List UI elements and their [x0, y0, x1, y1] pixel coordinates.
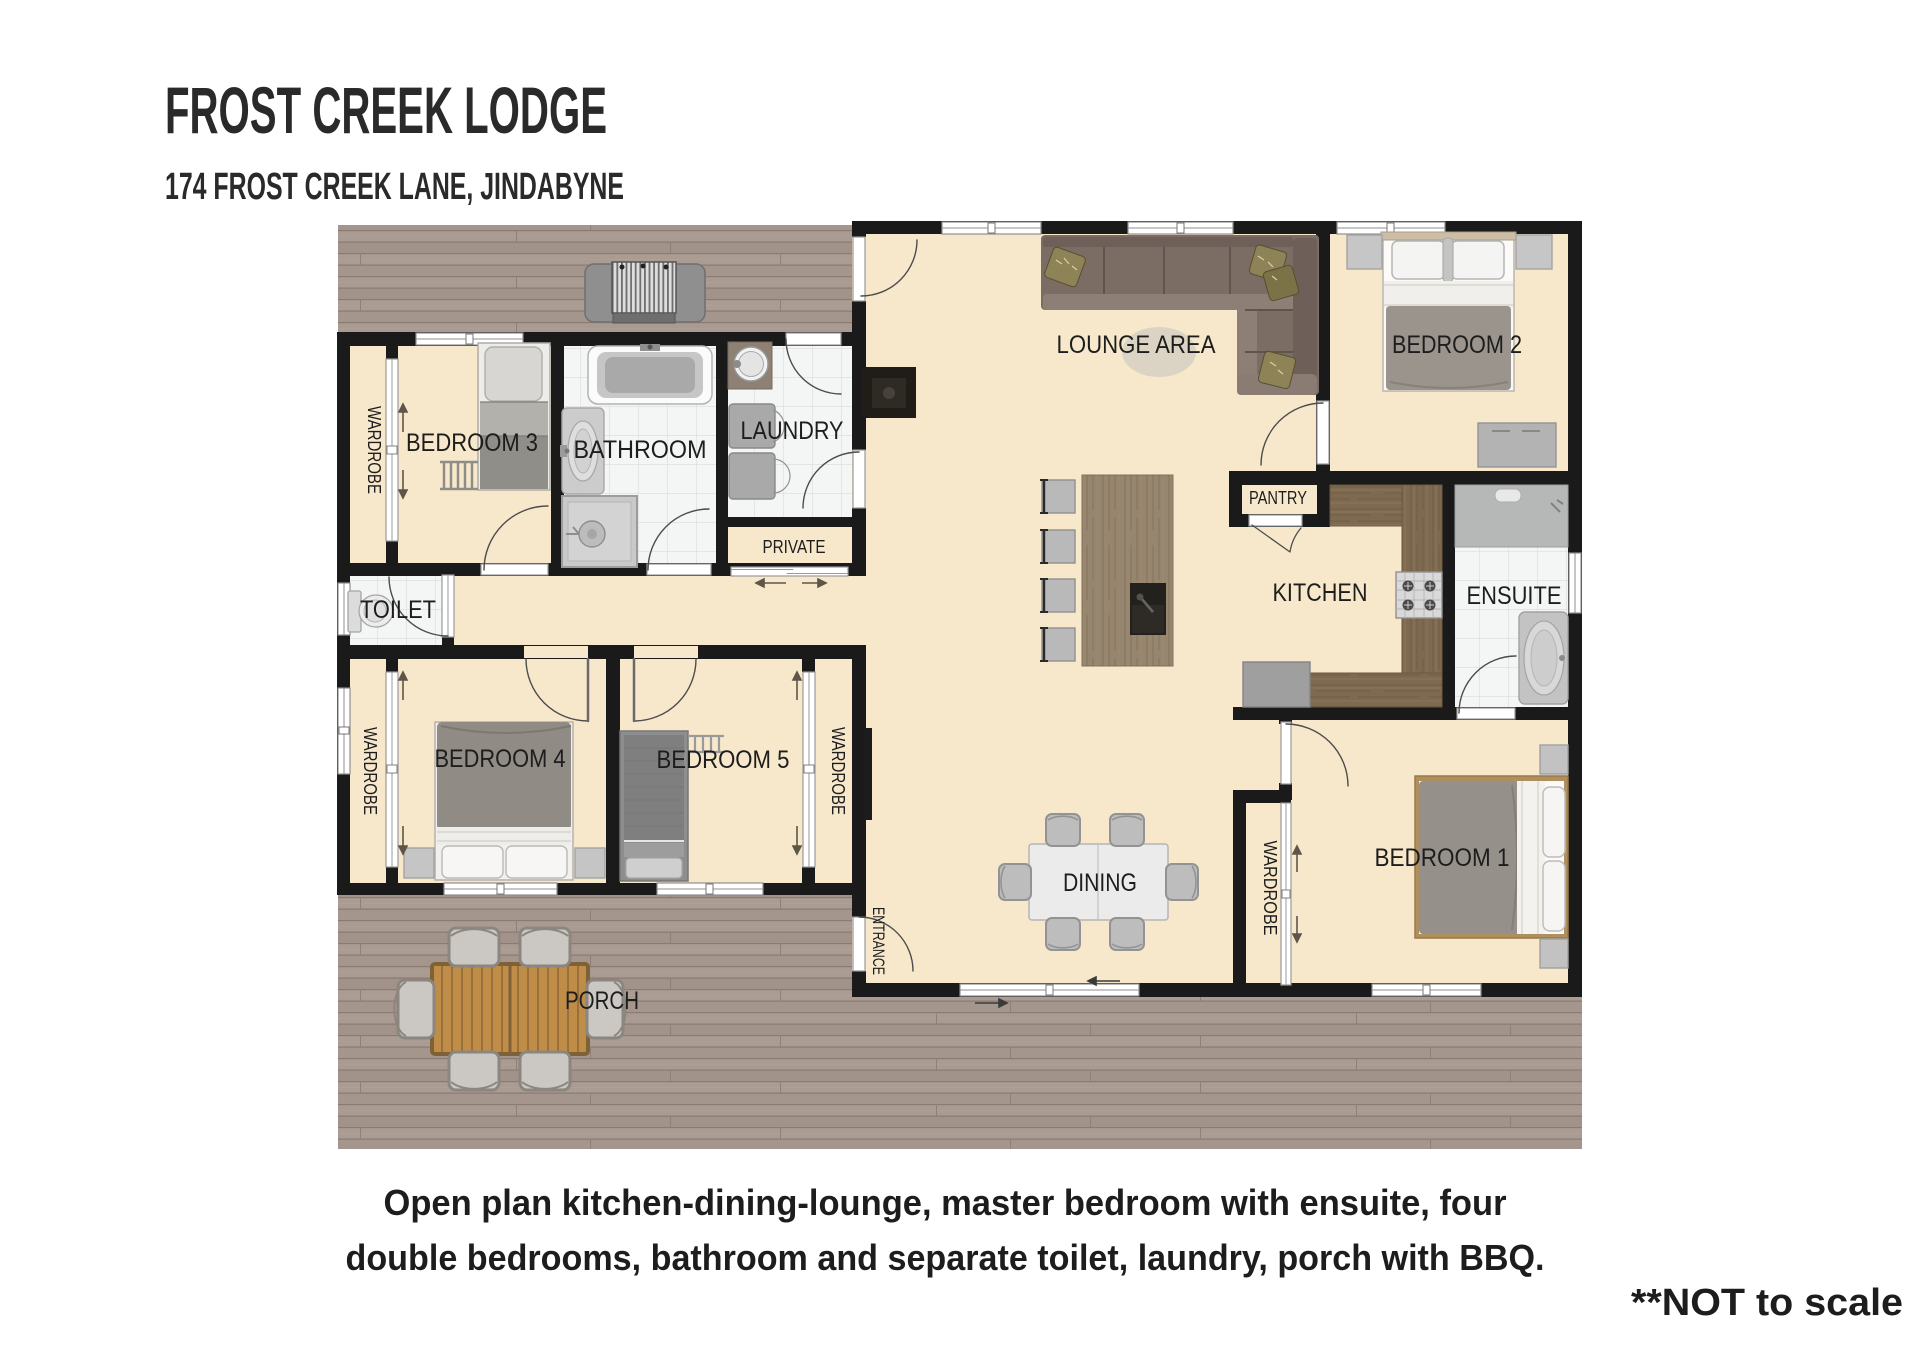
svg-text:174 FROST CREEK LANE, JINDABYN: 174 FROST CREEK LANE, JINDABYNE: [165, 166, 624, 208]
svg-text:PANTRY: PANTRY: [1249, 488, 1307, 508]
svg-text:WARDROBE: WARDROBE: [360, 727, 380, 815]
svg-text:DINING: DINING: [1063, 869, 1137, 897]
svg-text:TOILET: TOILET: [360, 596, 436, 624]
svg-text:ENTRANCE: ENTRANCE: [869, 907, 888, 975]
svg-text:double bedrooms, bathroom and: double bedrooms, bathroom and separate t…: [346, 1237, 1545, 1278]
svg-text:Open plan kitchen-dining-loung: Open plan kitchen-dining-lounge, master …: [384, 1182, 1507, 1223]
svg-text:FROST CREEK LODGE: FROST CREEK LODGE: [165, 73, 607, 147]
svg-text:PRIVATE: PRIVATE: [763, 537, 826, 557]
svg-text:BEDROOM 1: BEDROOM 1: [1375, 844, 1510, 872]
svg-text:KITCHEN: KITCHEN: [1273, 579, 1368, 607]
svg-text:WARDROBE: WARDROBE: [364, 406, 384, 494]
svg-text:BEDROOM 2: BEDROOM 2: [1392, 331, 1522, 359]
svg-text:BATHROOM: BATHROOM: [574, 436, 707, 464]
svg-text:BEDROOM 3: BEDROOM 3: [406, 429, 538, 457]
svg-text:**NOT to scale: **NOT to scale: [1631, 1282, 1903, 1324]
svg-text:LAUNDRY: LAUNDRY: [741, 417, 844, 445]
svg-text:PORCH: PORCH: [565, 987, 639, 1015]
svg-text:WARDROBE: WARDROBE: [1260, 841, 1280, 936]
svg-text:BEDROOM 4: BEDROOM 4: [435, 745, 566, 773]
svg-text:BEDROOM 5: BEDROOM 5: [657, 746, 790, 774]
svg-text:LOUNGE AREA: LOUNGE AREA: [1057, 331, 1216, 359]
svg-text:WARDROBE: WARDROBE: [828, 727, 848, 815]
svg-text:ENSUITE: ENSUITE: [1467, 582, 1562, 610]
